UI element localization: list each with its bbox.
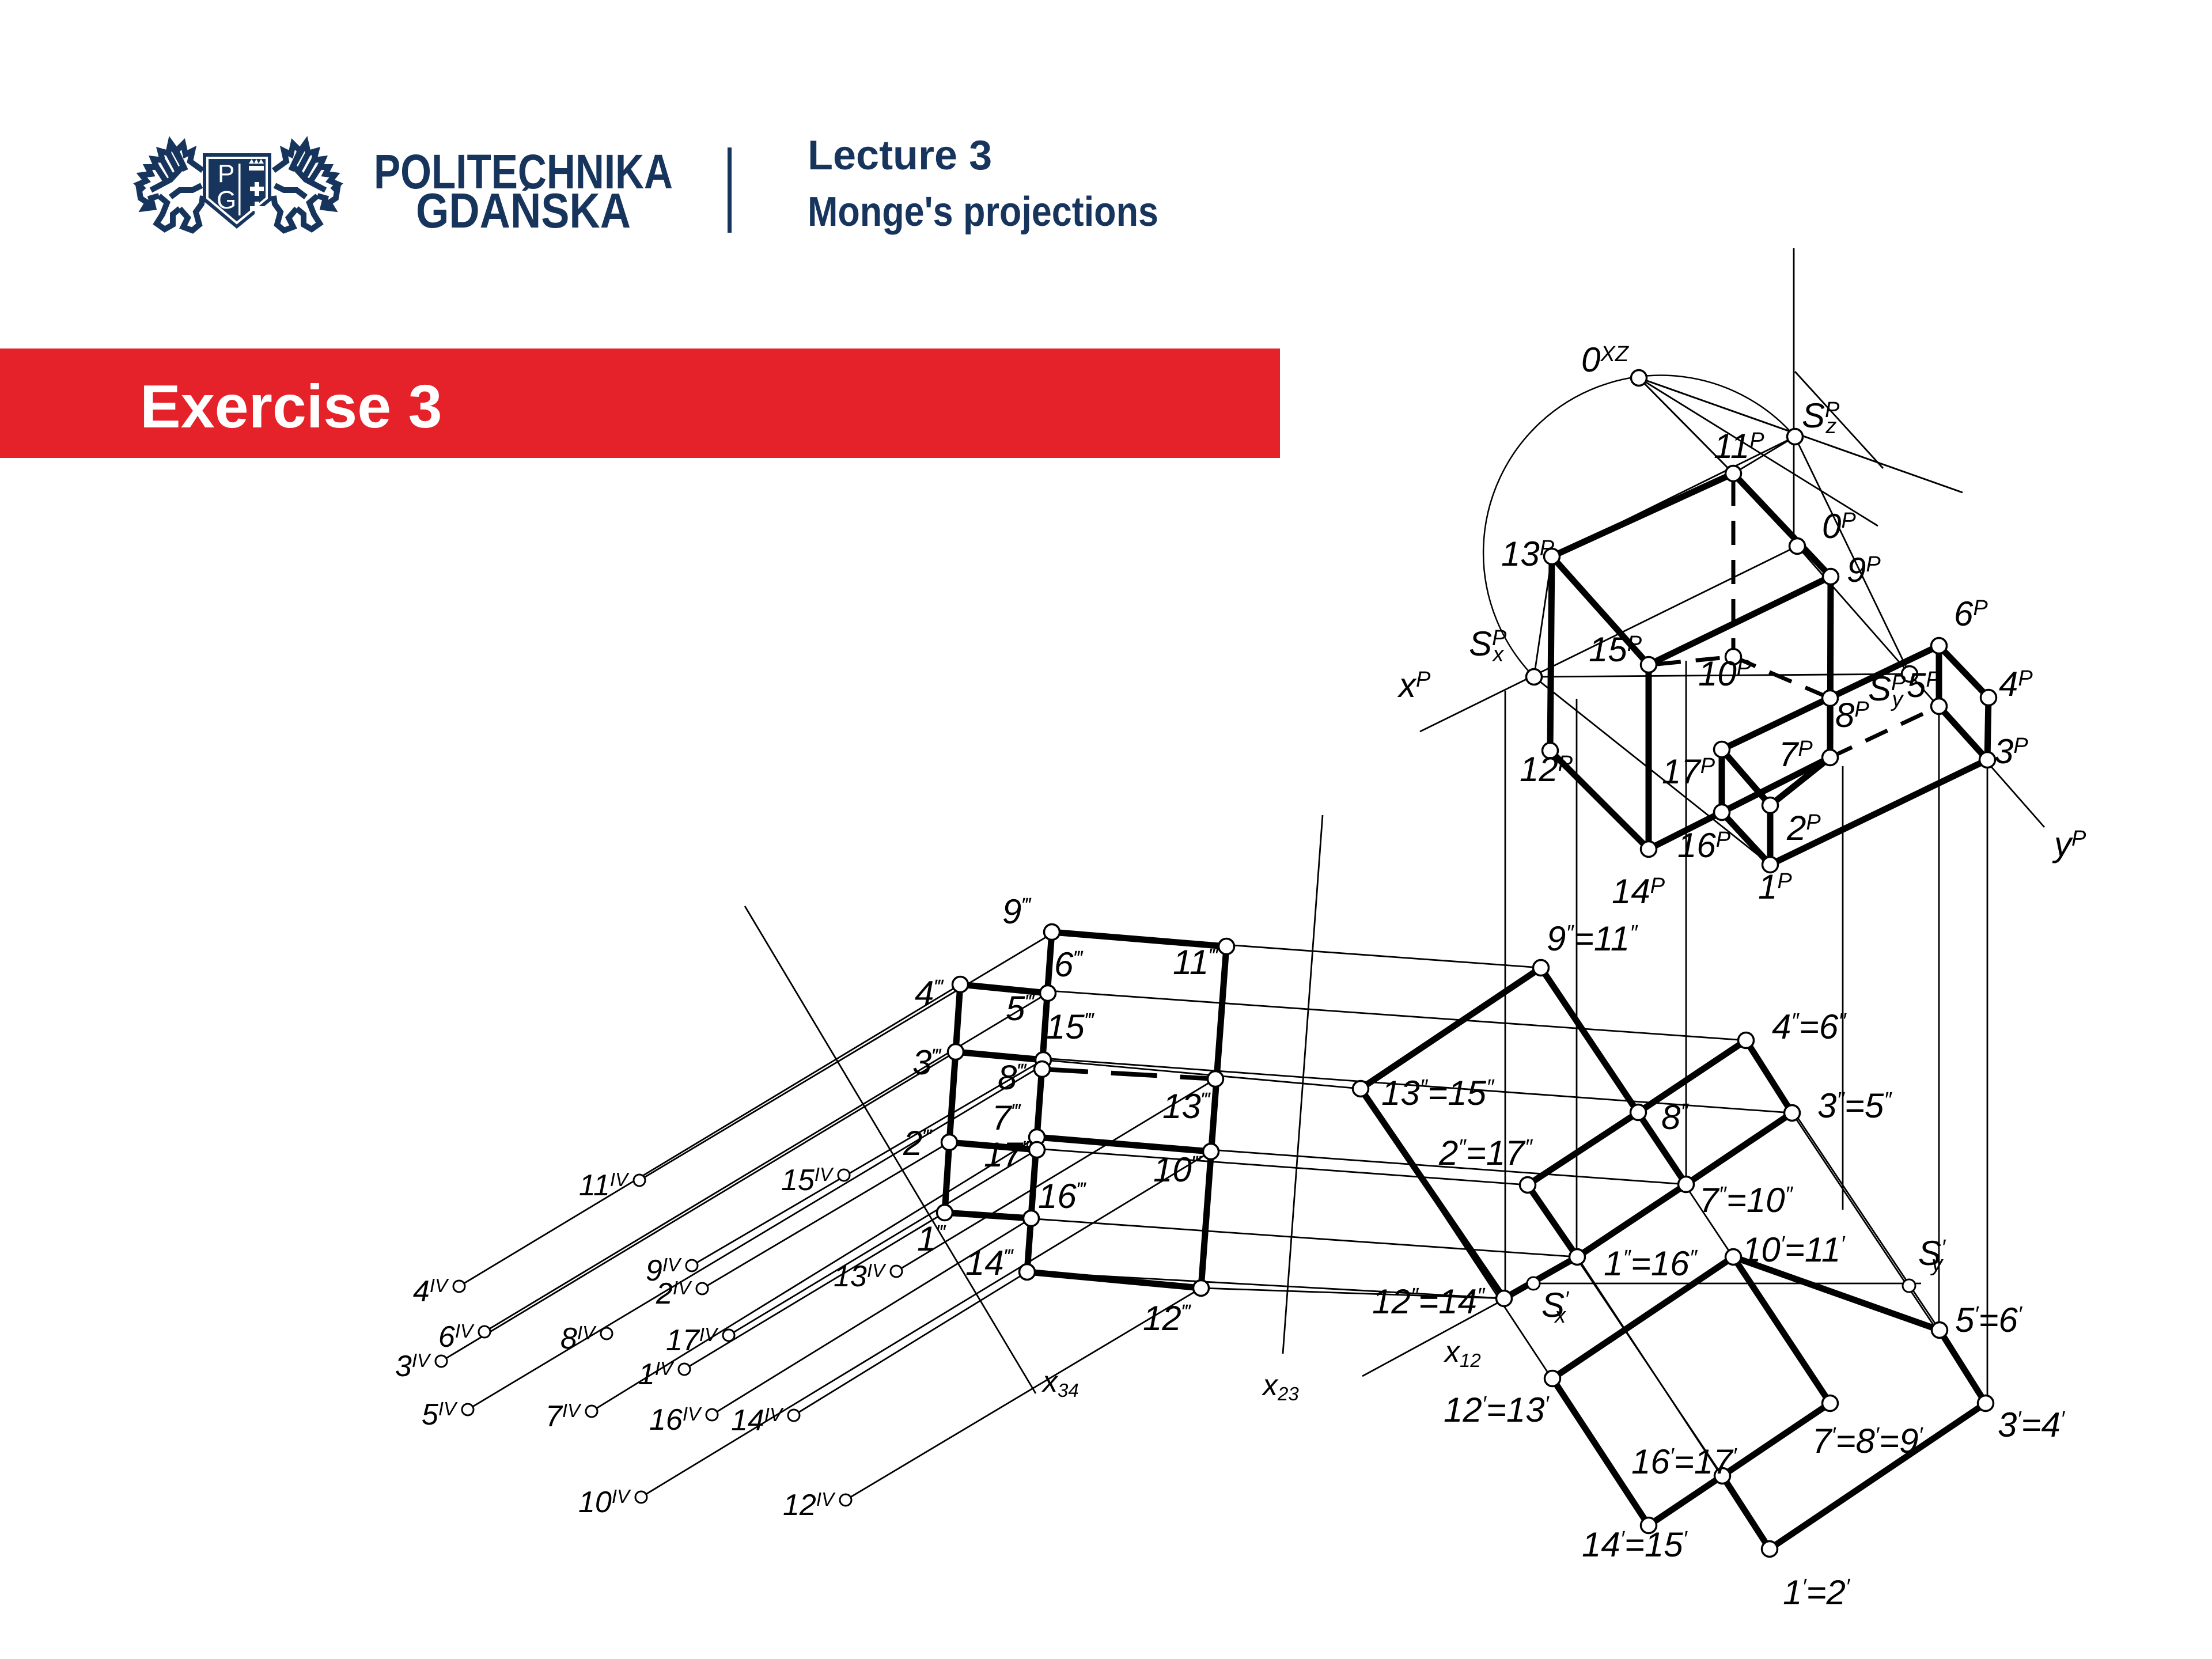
svg-text:7′=8′=9′: 7′=8′=9′ [1812, 1422, 1923, 1460]
svg-text:GDAŃSKA: GDAŃSKA [416, 184, 631, 238]
svg-text:1′=2′: 1′=2′ [1783, 1573, 1851, 1612]
svg-text:5′=6′: 5′=6′ [1955, 1301, 2023, 1339]
svg-text:10′=11′: 10′=11′ [1742, 1230, 1846, 1269]
svg-text:Lecture 3: Lecture 3 [808, 132, 992, 179]
svg-text:3″=5″: 3″=5″ [1817, 1086, 1892, 1125]
svg-text:12′=13′: 12′=13′ [1444, 1391, 1550, 1429]
svg-text:12″=14″: 12″=14″ [1372, 1282, 1486, 1321]
svg-text:16′=17′: 16′=17′ [1631, 1442, 1738, 1481]
svg-text:SPz: SPz [1802, 396, 1840, 438]
svg-text:S′y: S′y [1918, 1234, 1946, 1276]
svg-text:G: G [217, 186, 236, 214]
svg-text:7″=10″: 7″=10″ [1699, 1181, 1794, 1219]
svg-text:4″=6″: 4″=6″ [1772, 1007, 1847, 1046]
svg-text:P: P [218, 160, 234, 188]
svg-text:Exercise 3: Exercise 3 [140, 373, 442, 441]
svg-text:SPy: SPy [1868, 669, 1906, 711]
svg-text:9″=11″: 9″=11″ [1547, 919, 1638, 958]
svg-text:SPx: SPx [1469, 624, 1507, 666]
svg-text:2″=17″: 2″=17″ [1438, 1134, 1533, 1172]
svg-text:13″=15″: 13″=15″ [1381, 1074, 1495, 1112]
svg-text:1″=16″: 1″=16″ [1604, 1244, 1698, 1283]
svg-text:3′=4′: 3′=4′ [1998, 1406, 2066, 1444]
svg-text:Monge's projections: Monge's projections [808, 189, 1158, 235]
svg-text:S′x: S′x [1541, 1286, 1570, 1328]
svg-text:14′=15′: 14′=15′ [1582, 1525, 1688, 1564]
